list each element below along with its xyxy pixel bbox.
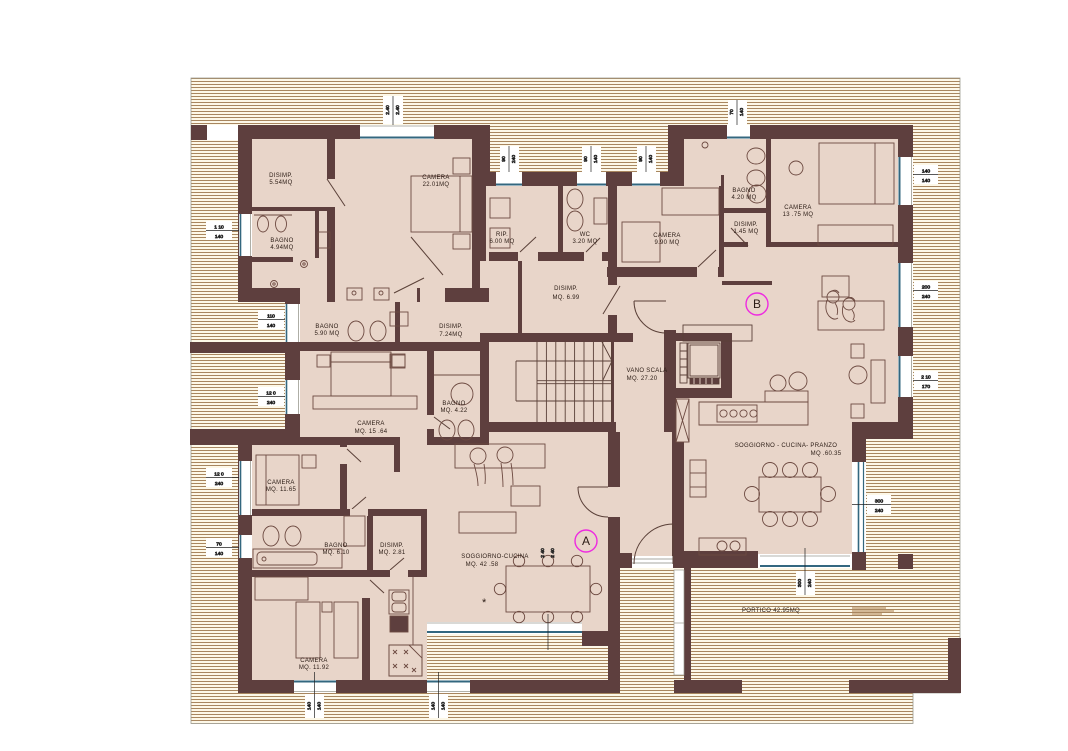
svg-text:240: 240 xyxy=(511,155,517,163)
svg-text:300: 300 xyxy=(875,499,883,505)
svg-text:140: 140 xyxy=(922,169,930,175)
svg-text:140: 140 xyxy=(307,702,313,710)
svg-text:*: * xyxy=(482,597,487,609)
svg-text:CAMERA: CAMERA xyxy=(422,175,449,181)
svg-text:RIP.: RIP. xyxy=(496,232,508,238)
svg-text:140: 140 xyxy=(441,702,447,710)
svg-text:140: 140 xyxy=(215,234,223,240)
svg-text:BAGNO: BAGNO xyxy=(315,324,338,330)
svg-text:240: 240 xyxy=(215,481,223,487)
svg-text:140: 140 xyxy=(648,155,654,163)
svg-text:CAMERA: CAMERA xyxy=(357,421,384,427)
svg-text:BAGNO: BAGNO xyxy=(324,543,347,549)
svg-text:DISIMP.: DISIMP. xyxy=(734,222,758,228)
svg-text:240: 240 xyxy=(807,579,813,587)
svg-text:2 40: 2 40 xyxy=(550,548,556,558)
svg-text:MQ. 2.81: MQ. 2.81 xyxy=(378,550,405,556)
svg-text:5.90 MQ: 5.90 MQ xyxy=(314,331,339,337)
svg-text:B: B xyxy=(753,297,761,311)
svg-text:300: 300 xyxy=(797,579,803,587)
svg-text:CAMERA: CAMERA xyxy=(653,233,680,239)
svg-text:1 10: 1 10 xyxy=(214,225,224,231)
svg-text:4.20 MQ: 4.20 MQ xyxy=(731,195,756,201)
svg-text:DISIMP.: DISIMP. xyxy=(380,543,404,549)
svg-text:140: 140 xyxy=(739,108,745,116)
svg-text:CAMERA: CAMERA xyxy=(267,480,294,486)
svg-text:PORTICO 42.95MQ: PORTICO 42.95MQ xyxy=(742,608,800,614)
svg-text:140: 140 xyxy=(317,702,323,710)
svg-text:5.54MQ: 5.54MQ xyxy=(269,180,292,186)
svg-text:140: 140 xyxy=(431,702,437,710)
svg-text:MQ. 42 .58: MQ. 42 .58 xyxy=(466,562,499,568)
svg-text:140: 140 xyxy=(922,178,930,184)
svg-text:2.40: 2.40 xyxy=(385,105,391,115)
svg-text:BAGNO: BAGNO xyxy=(732,188,755,194)
svg-text:CAMERA: CAMERA xyxy=(784,205,811,211)
svg-text:140: 140 xyxy=(215,551,223,557)
svg-text:240: 240 xyxy=(267,400,275,406)
svg-text:240: 240 xyxy=(922,294,930,300)
svg-text:12 0: 12 0 xyxy=(266,391,276,397)
svg-text:140: 140 xyxy=(593,155,599,163)
svg-text:MQ. 27.20: MQ. 27.20 xyxy=(627,376,658,382)
svg-text:140: 140 xyxy=(267,323,275,329)
svg-text:12 0: 12 0 xyxy=(214,472,224,478)
svg-text:MQ. 6.99: MQ. 6.99 xyxy=(552,295,579,301)
svg-text:90: 90 xyxy=(583,156,589,162)
svg-text:2.40: 2.40 xyxy=(395,105,401,115)
svg-text:MQ. 15 .64: MQ. 15 .64 xyxy=(355,429,388,435)
svg-text:70: 70 xyxy=(729,109,735,115)
svg-text:MQ. 11.92: MQ. 11.92 xyxy=(299,665,330,671)
svg-text:2 40: 2 40 xyxy=(540,548,546,558)
svg-text:MQ. 11.65: MQ. 11.65 xyxy=(266,487,297,493)
svg-text:4.94MQ: 4.94MQ xyxy=(270,245,293,251)
svg-text:DISIMP.: DISIMP. xyxy=(269,173,293,179)
svg-text:SOGGIORNO-CUCINA: SOGGIORNO-CUCINA xyxy=(461,554,528,560)
svg-text:90: 90 xyxy=(638,156,644,162)
svg-text:7.24MQ: 7.24MQ xyxy=(439,332,462,338)
svg-text:VANO SCALA: VANO SCALA xyxy=(627,368,668,374)
svg-text:DISIMP.: DISIMP. xyxy=(554,286,578,292)
svg-text:WC: WC xyxy=(580,232,591,238)
svg-text:22.01MQ: 22.01MQ xyxy=(423,182,450,188)
svg-text:6.00 MQ: 6.00 MQ xyxy=(489,239,514,245)
svg-text:2 10: 2 10 xyxy=(921,375,931,381)
svg-text:110: 110 xyxy=(267,314,275,320)
svg-text:SOGGIORNO - CUCINA- PRANZO: SOGGIORNO - CUCINA- PRANZO xyxy=(735,443,838,449)
svg-text:240: 240 xyxy=(875,508,883,514)
svg-text:CAMERA: CAMERA xyxy=(300,658,327,664)
svg-text:9.90 MQ: 9.90 MQ xyxy=(654,240,679,246)
svg-text:1.45 MQ: 1.45 MQ xyxy=(733,229,758,235)
svg-text:BAGNO: BAGNO xyxy=(442,401,465,407)
svg-text:A: A xyxy=(582,534,590,548)
svg-text:3.20 MQ: 3.20 MQ xyxy=(572,239,597,245)
svg-text:MQ. 4.22: MQ. 4.22 xyxy=(440,408,467,414)
svg-text:170: 170 xyxy=(922,384,930,390)
svg-text:MQ .60.35: MQ .60.35 xyxy=(811,451,842,457)
svg-text:13 .75 MQ: 13 .75 MQ xyxy=(783,212,814,218)
svg-text:90: 90 xyxy=(501,156,507,162)
svg-text:BAGNO: BAGNO xyxy=(270,238,293,244)
svg-text:MQ. 6.10: MQ. 6.10 xyxy=(322,550,349,556)
svg-text:200: 200 xyxy=(922,285,930,291)
svg-text:DISIMP.: DISIMP. xyxy=(439,324,463,330)
svg-text:70: 70 xyxy=(216,542,222,548)
